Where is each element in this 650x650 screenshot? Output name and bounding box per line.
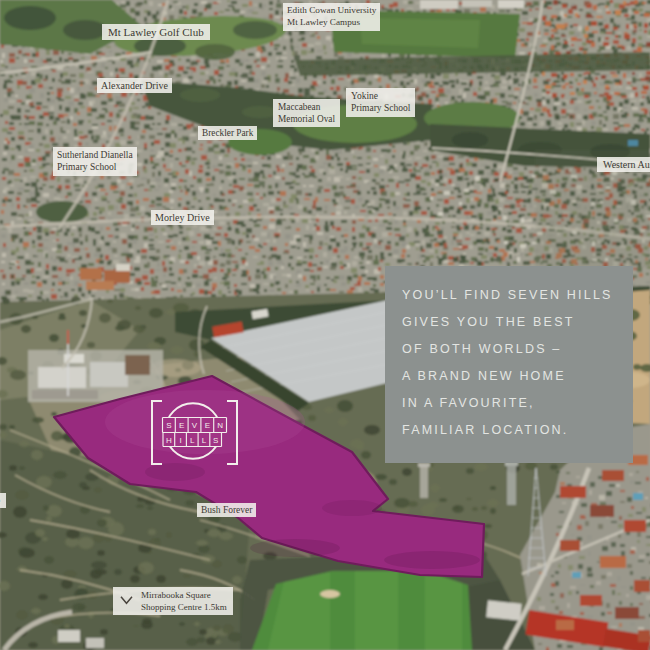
svg-text:L: L — [190, 436, 195, 445]
svg-text:S: S — [213, 436, 218, 445]
svg-text:N: N — [217, 421, 223, 430]
svg-text:S: S — [166, 421, 171, 430]
svg-text:V: V — [192, 421, 198, 430]
svg-text:E: E — [205, 421, 210, 430]
svg-text:I: I — [179, 436, 181, 445]
svg-text:H: H — [166, 436, 172, 445]
svg-text:E: E — [179, 421, 184, 430]
svg-text:L: L — [202, 436, 207, 445]
